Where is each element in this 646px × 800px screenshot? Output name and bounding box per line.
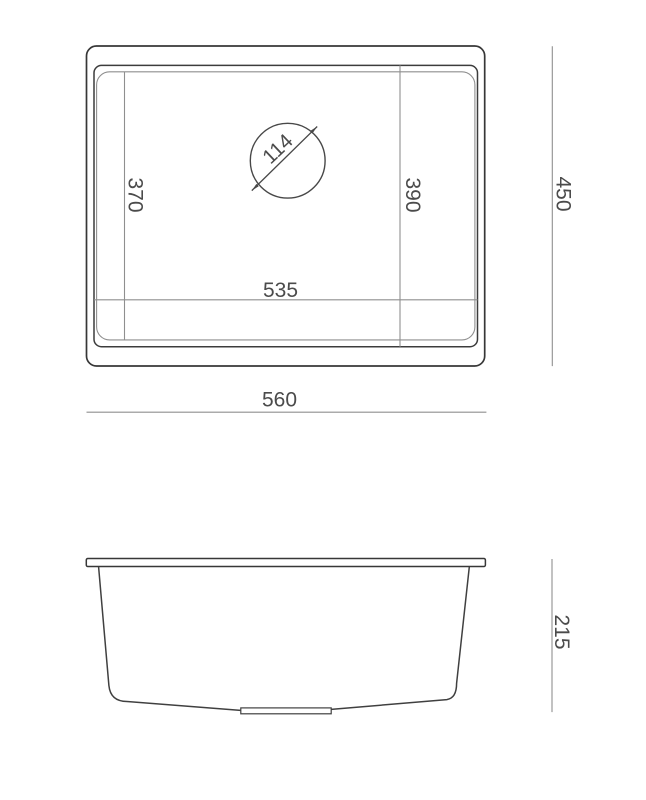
svg-text:215: 215 xyxy=(550,614,573,649)
svg-text:370: 370 xyxy=(124,177,147,212)
svg-text:535: 535 xyxy=(263,279,298,302)
svg-text:390: 390 xyxy=(401,177,424,212)
svg-text:560: 560 xyxy=(262,388,297,411)
svg-text:450: 450 xyxy=(551,176,574,211)
svg-text:114: 114 xyxy=(258,129,298,168)
